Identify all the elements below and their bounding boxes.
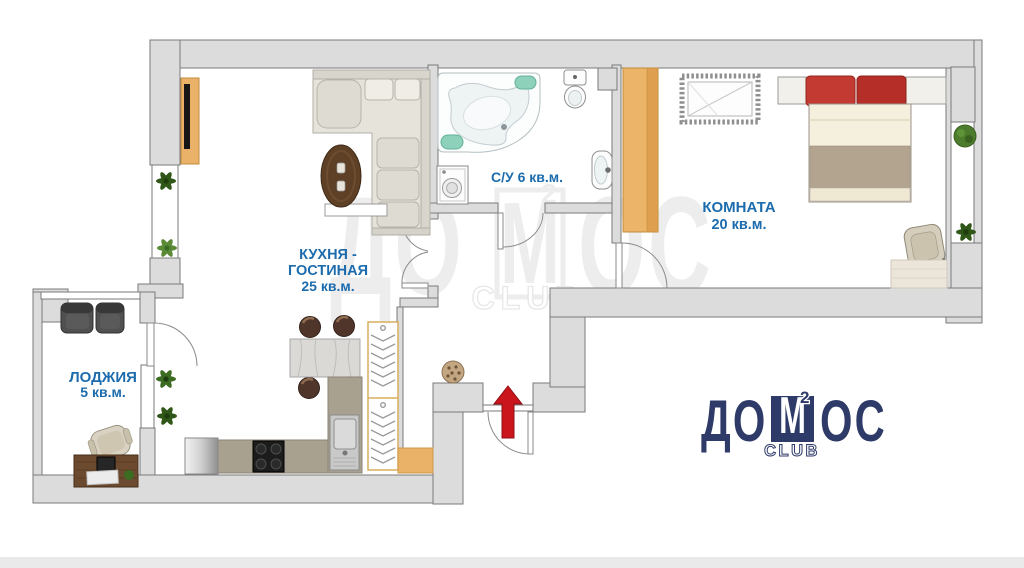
label-kitchen-line3: 25 кв.м. [301,278,354,294]
desk-icon [74,455,138,487]
window-loggia-north [41,292,140,299]
wall-west-above-door [140,292,155,323]
logo-club: CLUB [764,442,820,460]
crib-icon [682,76,758,122]
floor-plan-page: ДО М 2 ОС CLUB [0,0,1024,568]
wall-bathroom-east [612,65,621,243]
label-bathroom: С/У 6 кв.м. [491,169,563,185]
label-bedroom-line2: 20 кв.м. [711,217,766,233]
bar-stool-icon [334,316,355,337]
tv-stand-icon [181,78,199,164]
logo-sup2: 2 [800,388,809,407]
wall-balcony-partition [946,68,951,288]
monitor-icon [97,457,115,471]
entry-door-leaf [528,412,533,454]
logo-text-os: ОС [820,388,887,453]
dining-table-icon [321,145,361,207]
bathroom-door-leaf [498,213,503,249]
label-kitchen-line1: КУХНЯ - [299,247,357,263]
toilet-icon [564,70,586,108]
washing-machine-icon [437,166,468,204]
pillow-icon [806,76,855,106]
bar-table-icon [290,339,360,377]
wall-entry-left-block [433,383,483,412]
balcony-chair-icon [61,303,93,333]
plant-icon [124,470,134,480]
rug-icon [891,260,947,288]
wall-bathroom-south-right [545,203,618,213]
wardrobe-icon [623,68,658,232]
wall-hall-north [400,298,438,307]
pouf-icon [442,361,464,383]
wall-balcony-north [951,67,975,122]
balcony-chair-icon [96,303,124,333]
loggia-door-leaf [147,323,154,366]
wall-bedroom-south [550,288,982,317]
image-bottom-strip [0,557,1024,568]
wall-top [150,40,982,68]
brand-logo: ДО М 2 ОС CLUB [701,387,887,460]
bathroom-sink-icon [592,151,612,189]
logo-text-do: ДО [701,388,768,453]
label-bedroom-line1: КОМНАТА [702,199,775,216]
pillow-icon [857,76,906,106]
plant-icon [954,125,976,147]
window-west-lower [141,365,154,428]
double-door-leaf-bottom [402,283,428,288]
hall-wood-floor [398,448,433,473]
nightstand-icon [906,77,946,104]
wall-left-upper [150,40,180,165]
kitchen-sink-icon [330,415,359,470]
wall-entry-right-column [550,317,585,387]
wall-loggia-west [33,292,42,498]
nightstand-icon [778,77,806,104]
bedroom-door-leaf [616,243,622,288]
bar-stool-icon [299,378,320,399]
wall-west-below-window [140,428,155,477]
label-kitchen-line2: ГОСТИНАЯ [288,263,368,279]
bar-stool-icon [300,317,321,338]
floor-plan-canvas: ДО М 2 ОС CLUB [0,0,1024,568]
stove-icon [253,441,284,472]
tv-icon [184,84,190,149]
wall-toilet-stub [598,68,617,90]
keyboard-paper-icon [87,470,119,485]
hanger-closet-icon [368,322,398,470]
fridge-icon [185,438,218,474]
label-loggia-line2: 5 кв.м. [80,384,125,400]
